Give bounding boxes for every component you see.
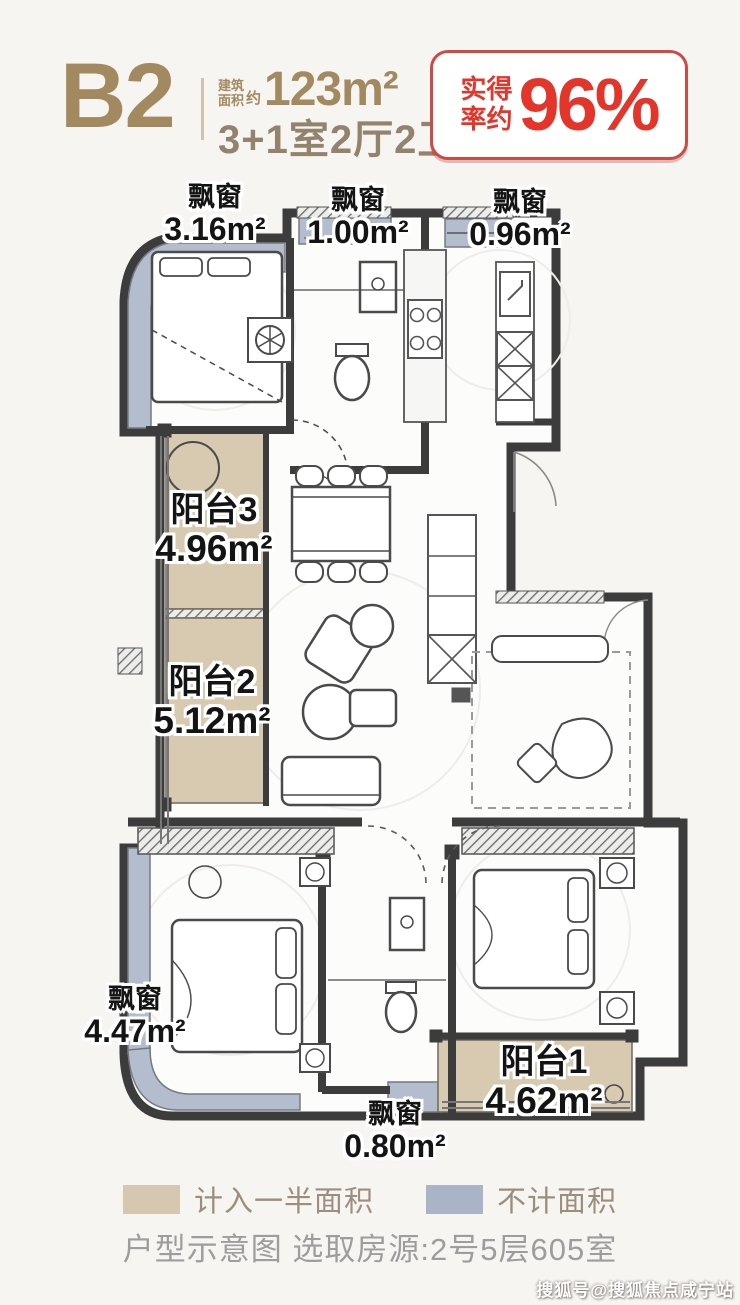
label-bay-window-3: 飘窗 0.96m² (440, 188, 600, 252)
label-bay-window-4-area: 4.47m² (84, 1014, 185, 1049)
page-root: B2 建筑 面积 约 123m² 3+1室2厅2卫 实得 率约 96% (0, 0, 740, 1305)
legend-swatch-excluded (426, 1185, 483, 1214)
side-table (350, 690, 396, 726)
nightstand-b3-2 (600, 992, 634, 1024)
label-balcony-2-name: 阳台2 (169, 664, 256, 701)
caption: 户型示意图 选取房源:2号5层605室 (0, 1224, 740, 1269)
label-bay-window-4: 飘窗 4.47m² (55, 985, 215, 1049)
label-bay-window-1-area: 3.16m² (164, 212, 265, 247)
balcony-divider (166, 609, 266, 618)
label-bay-window-3-name: 飘窗 (493, 188, 547, 217)
legend-label-half-area: 计入一半面积 (194, 1178, 374, 1220)
label-balcony-3-area: 4.96m² (155, 529, 272, 569)
label-balcony-1: 阳台1 4.62m² (458, 1044, 630, 1121)
label-bay-window-3-area: 0.96m² (469, 217, 570, 252)
legend-item-half-area: 计入一半面积 (123, 1178, 374, 1220)
toilet-2 (386, 992, 416, 1032)
side-ball (351, 605, 393, 647)
legend-swatch-half-area (123, 1185, 180, 1214)
wardrobe-bedroom3 (462, 828, 634, 854)
sink-2 (390, 898, 424, 950)
watermark: 搜狐号@搜狐焦点咸宁站 (536, 1276, 734, 1301)
label-bay-window-1: 飘窗 3.16m² (135, 183, 295, 247)
sink-1 (360, 262, 396, 312)
label-balcony-2: 阳台2 5.12m² (128, 664, 296, 741)
dining-table (292, 487, 390, 561)
legend-label-excluded: 不计面积 (497, 1178, 617, 1220)
label-bay-window-2: 飘窗 1.00m² (278, 186, 438, 250)
hall-cabinet (428, 515, 476, 702)
label-bay-window-2-name: 飘窗 (331, 186, 385, 215)
label-bay-window-5: 飘窗 0.80m² (315, 1100, 475, 1164)
label-bay-window-2-area: 1.00m² (307, 215, 408, 250)
label-bay-window-1-name: 飘窗 (188, 183, 242, 212)
nightstand-master-2 (300, 1044, 330, 1072)
dining-set (292, 466, 390, 582)
label-balcony-2-area: 5.12m² (153, 701, 270, 741)
label-bay-window-5-name: 飘窗 (368, 1100, 422, 1129)
sofa (282, 757, 380, 805)
nightstand-master-1 (300, 858, 330, 886)
label-balcony-3-name: 阳台3 (171, 492, 258, 529)
label-balcony-1-name: 阳台1 (501, 1044, 588, 1081)
label-bay-window-5-area: 0.80m² (344, 1129, 445, 1164)
toilet-1-tank (336, 344, 368, 356)
legend: 计入一半面积 不计面积 (0, 1178, 740, 1220)
label-balcony-3: 阳台3 4.96m² (130, 492, 298, 569)
toilet-1 (335, 356, 369, 400)
study-desk (492, 636, 608, 662)
label-balcony-1-area: 4.62m² (485, 1081, 602, 1121)
label-bay-window-4-name: 飘窗 (108, 985, 162, 1014)
legend-item-excluded: 不计面积 (426, 1178, 617, 1220)
